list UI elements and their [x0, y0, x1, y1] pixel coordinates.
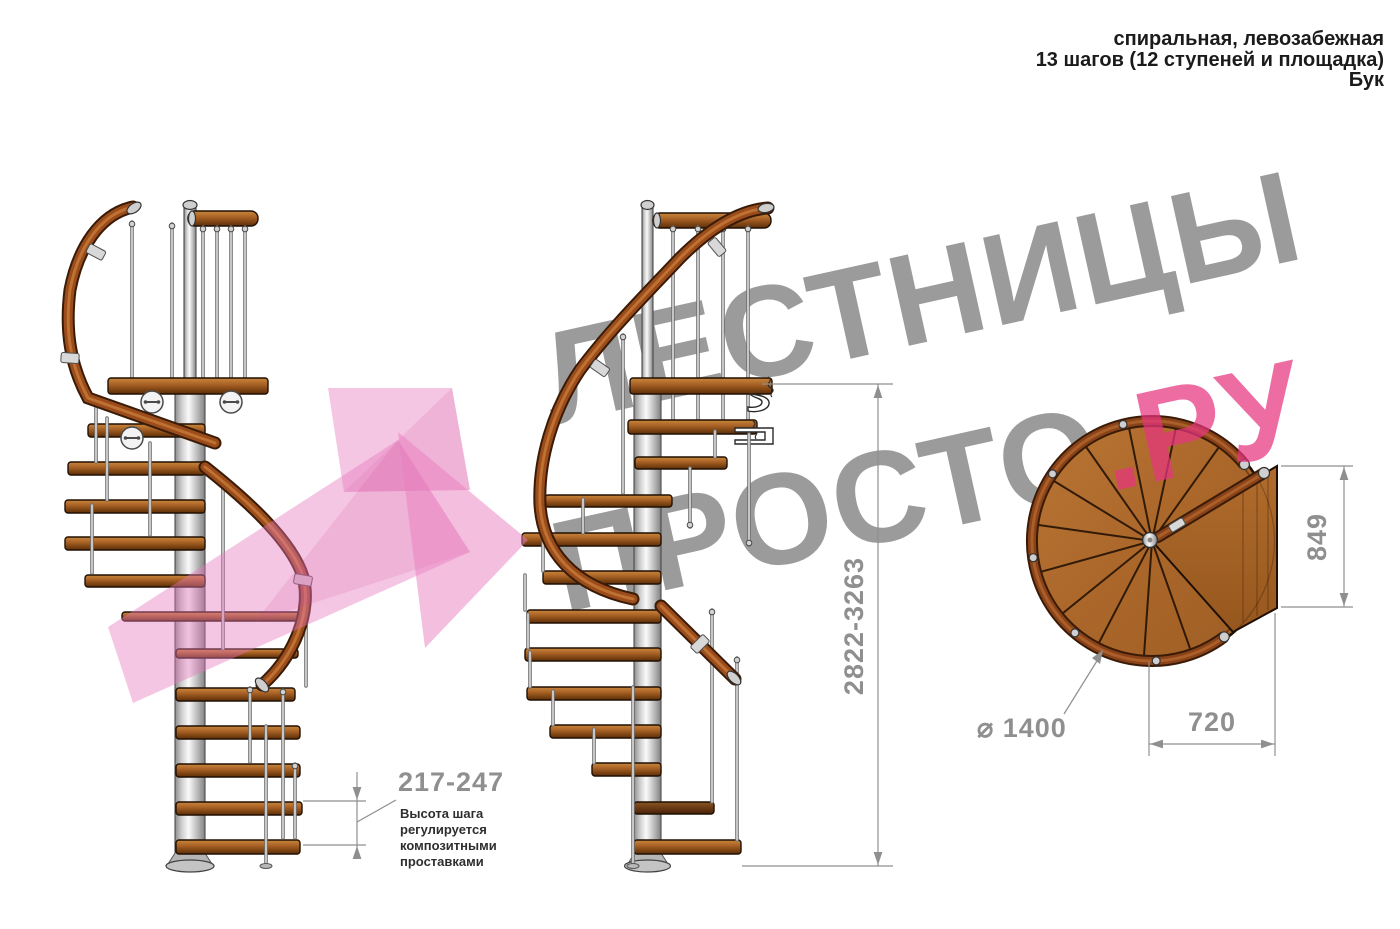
step-height-note: Высота шага регулируется композитными пр… [400, 806, 497, 870]
total-height-label: 2822-3263 [839, 557, 869, 695]
dimension-total-height: 2822-3263 [742, 384, 893, 866]
diameter-label: ⌀ 1400 [977, 713, 1067, 743]
stair-type-line: спиральная, левозабежная [1036, 29, 1384, 50]
step-height-label: 217-247 [398, 767, 504, 797]
platform-depth-label: 849 [1302, 513, 1332, 561]
platform-width-label: 720 [1188, 707, 1236, 737]
step-count-line: 13 шагов (12 ступеней и площадка) [1036, 50, 1384, 71]
title-block: спиральная, левозабежная 13 шагов (12 ст… [1036, 29, 1384, 91]
dimension-annotations: 2822-3263 849 720 ⌀ 1400 217-247 [0, 0, 1400, 929]
dimension-diameter: ⌀ 1400 [977, 650, 1103, 743]
material-line: Бук [1036, 70, 1384, 91]
staircase-drawing-canvas: ЛЕСТНИЦЫ ПРОСТО.РУ [0, 0, 1400, 929]
note-line-2: регулируется [400, 822, 497, 838]
note-line-4: проставками [400, 854, 497, 870]
note-line-3: композитными [400, 838, 497, 854]
note-line-1: Высота шага [400, 806, 497, 822]
dimension-platform-depth: 849 [1281, 466, 1353, 607]
dimension-platform-width: 720 [1149, 613, 1275, 756]
